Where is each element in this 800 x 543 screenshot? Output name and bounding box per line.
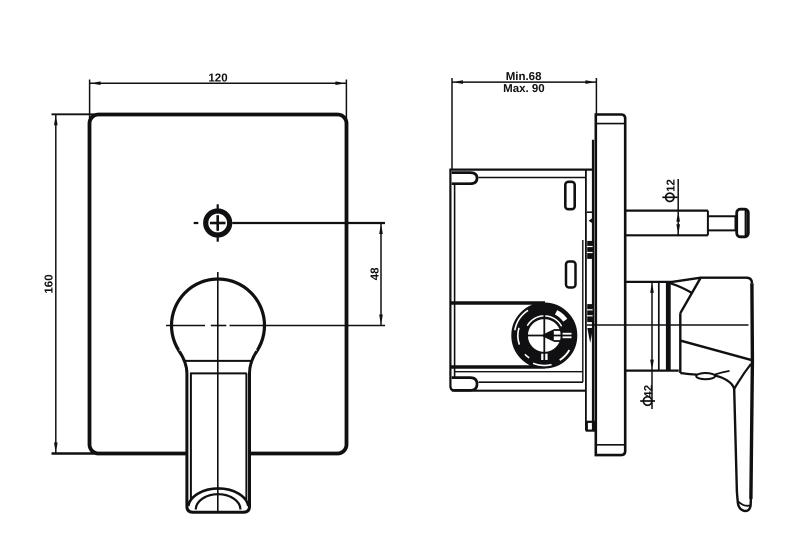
svg-text:48: 48 — [370, 267, 382, 280]
svg-text:Min.68: Min.68 — [506, 71, 542, 83]
svg-text:Max. 90: Max. 90 — [503, 83, 545, 95]
svg-text:12: 12 — [665, 179, 677, 192]
svg-text:120: 120 — [208, 72, 227, 84]
svg-text:42: 42 — [643, 385, 655, 398]
svg-text:160: 160 — [43, 274, 55, 293]
